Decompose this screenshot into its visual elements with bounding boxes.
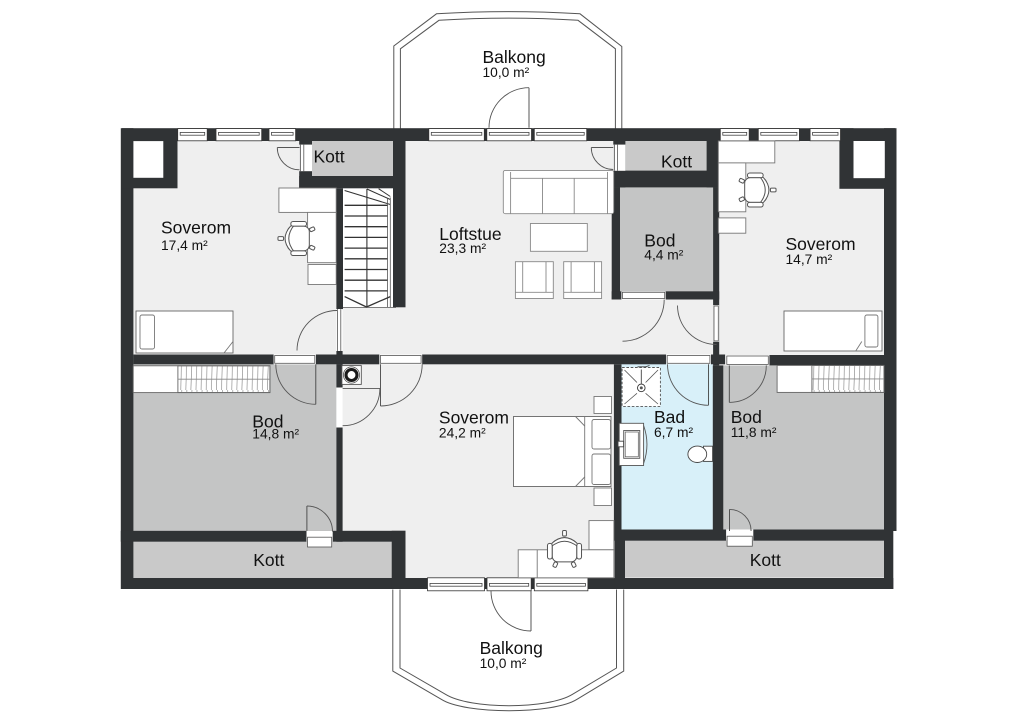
svg-text:11,8 m²: 11,8 m² <box>731 425 777 440</box>
svg-text:14,7 m²: 14,7 m² <box>786 252 833 267</box>
svg-text:Balkong: Balkong <box>483 47 546 67</box>
svg-text:4,4 m²: 4,4 m² <box>644 248 684 263</box>
svg-text:Soverom: Soverom <box>439 408 509 428</box>
svg-text:Bod: Bod <box>731 407 762 427</box>
svg-text:17,4 m²: 17,4 m² <box>161 238 208 253</box>
svg-text:23,3 m²: 23,3 m² <box>439 241 486 256</box>
svg-text:Kott: Kott <box>661 152 692 172</box>
svg-text:Balkong: Balkong <box>480 638 543 658</box>
svg-text:14,8 m²: 14,8 m² <box>252 427 299 442</box>
svg-text:Bad: Bad <box>654 407 685 427</box>
svg-text:Kott: Kott <box>253 550 284 570</box>
svg-text:24,2 m²: 24,2 m² <box>439 426 486 441</box>
svg-text:Soverom: Soverom <box>786 234 856 254</box>
svg-text:Kott: Kott <box>750 550 781 570</box>
svg-text:10,0 m²: 10,0 m² <box>483 65 530 80</box>
svg-text:Kott: Kott <box>314 147 345 167</box>
svg-text:Soverom: Soverom <box>161 218 231 238</box>
svg-text:6,7 m²: 6,7 m² <box>654 425 694 440</box>
svg-text:10,0 m²: 10,0 m² <box>480 656 527 671</box>
